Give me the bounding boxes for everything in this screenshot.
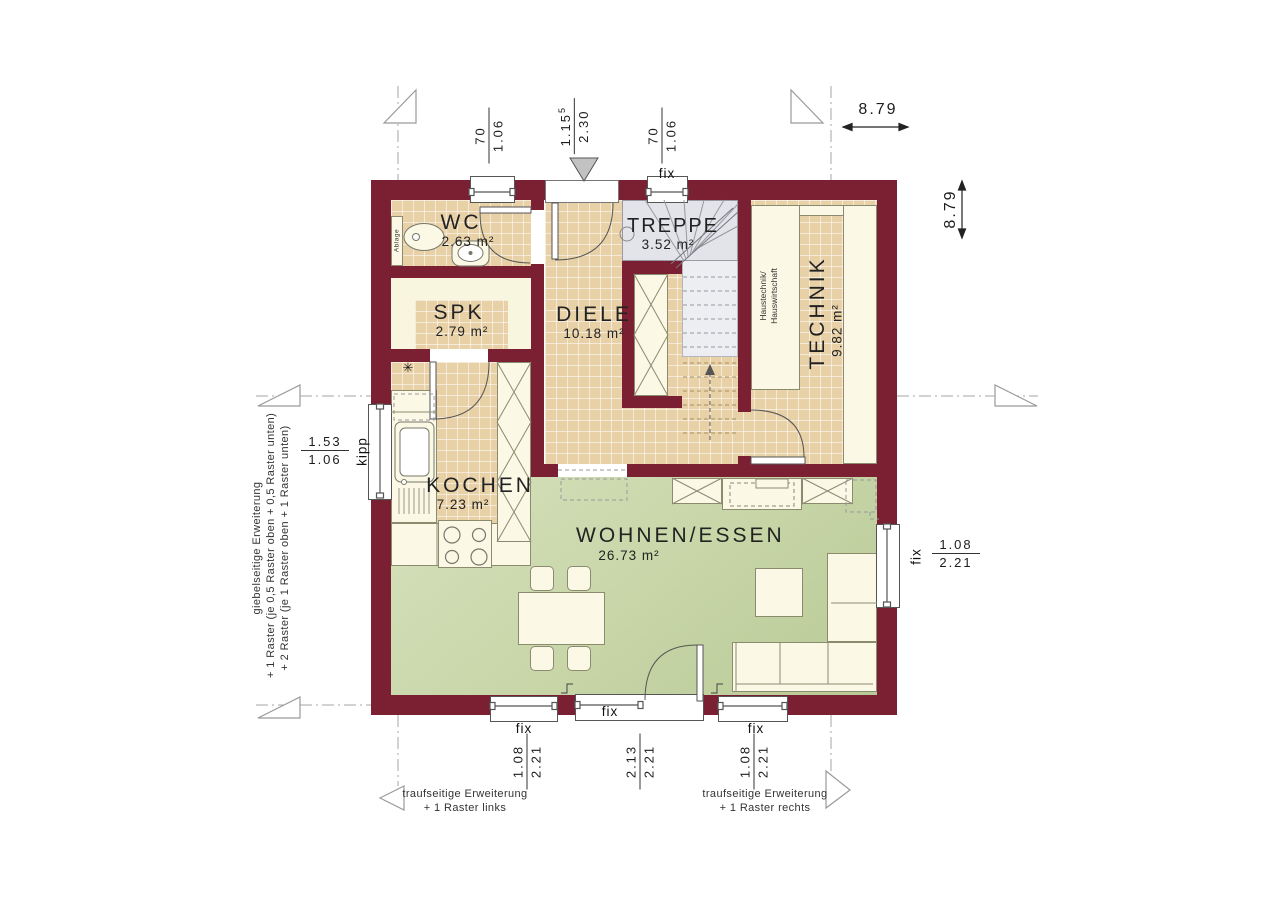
room-label-wc: WC: [421, 211, 501, 235]
room-area-wohnen: 26.73 m²: [584, 548, 674, 563]
window-label-right-fix: fix: [909, 542, 924, 572]
wall-wc-bottom: [391, 266, 544, 278]
room-label-kochen: KOCHEN: [425, 474, 535, 498]
technik-note-line2: Hauswirtschaft: [769, 251, 780, 341]
room-label-diele: DIELE: [544, 303, 644, 327]
dim-top-wc-window: 70 1.06: [473, 108, 506, 164]
technik-note: Haustechnik/ Hauswirtschaft: [758, 251, 780, 341]
dining-chair: [530, 646, 554, 671]
sideboard-left: [672, 478, 722, 504]
room-area-wc: 2.63 m²: [428, 234, 508, 249]
dim-bottom-terrace: 2.13 2.21: [624, 734, 657, 790]
kitchen-stove: [438, 520, 492, 568]
sofa-seat: [732, 642, 877, 692]
wall-exterior-top: [371, 180, 897, 200]
dining-chair: [567, 566, 591, 591]
room-area-kochen: 7.23 m²: [423, 497, 503, 512]
dim-top-entrance: 1.155 2.30: [557, 98, 591, 154]
wall-hall-west: [531, 264, 544, 477]
room-label-treppe: TREPPE: [618, 215, 728, 238]
floorplan-canvas: WC 2.63 m² SPK 2.79 m² DIELE 10.18 m² TR…: [0, 0, 1280, 905]
technik-cabinet-right: [843, 205, 877, 464]
dining-table: [518, 592, 605, 645]
window-bottom-left-fix: [490, 696, 558, 722]
wc-shelf-label: Ablage: [394, 221, 401, 261]
dim-bottom-right-window: 1.08 2.21: [738, 734, 771, 790]
annotation-bottom-right: traufseitige Erweiterung + 1 Raster rech…: [695, 787, 835, 815]
wall-technik-west: [738, 200, 751, 412]
room-area-technik: 9.82 m²: [830, 291, 845, 371]
dim-right-window: 1.08 2.21: [932, 537, 980, 570]
room-area-diele: 10.18 m²: [544, 326, 644, 341]
sofa-chaise: [827, 553, 877, 642]
dining-chair: [567, 646, 591, 671]
sideboard-middle: [722, 478, 802, 510]
kitchen-tall-cabinets: [497, 362, 531, 542]
dim-left-window: 1.53 1.06: [301, 434, 349, 467]
dim-bottom-left-window: 1.08 2.21: [511, 734, 544, 790]
kitchen-marker: ✳: [396, 360, 420, 376]
coffee-table: [755, 568, 803, 617]
stair-lower-flight: [682, 261, 738, 357]
wall-pantry-bottom-right: [488, 349, 544, 362]
wall-hall-living: [627, 464, 877, 477]
entrance-arrow-icon: [570, 158, 598, 181]
sideboard-right: [802, 478, 853, 504]
annotation-left: giebelseitige Erweiterung + 1 Raster (je…: [250, 418, 292, 678]
room-area-spk: 2.79 m²: [422, 324, 502, 339]
annotation-bottom-left: traufseitige Erweiterung + 1 Raster link…: [395, 787, 535, 815]
wall-passage-stub: [544, 464, 558, 477]
window-label-top-fix: fix: [647, 166, 687, 181]
room-label-technik: TECHNIK: [806, 253, 830, 373]
room-area-treppe: 3.52 m²: [613, 237, 723, 252]
dim-overall-height: 8.79: [942, 179, 960, 239]
wall-stair-stub-bottom: [622, 396, 682, 408]
window-top-wc: [470, 176, 515, 203]
wall-technik-doorframe: [738, 456, 751, 464]
window-right-fix: [876, 524, 900, 608]
dim-top-fix-window: 70 1.06: [646, 108, 679, 164]
dining-chair: [530, 566, 554, 591]
window-label-terrace-fix: fix: [590, 704, 630, 719]
room-label-wohnen: WOHNEN/ESSEN: [576, 524, 776, 548]
dim-overall-width: 8.79: [848, 101, 908, 119]
window-bottom-right-fix: [718, 696, 788, 722]
window-label-kipp: kipp: [355, 432, 370, 472]
room-label-spk: SPK: [419, 301, 499, 325]
wall-hall-west-upper: [531, 200, 544, 210]
entrance-opening: [545, 180, 619, 203]
wall-exterior-right: [877, 180, 897, 715]
technik-note-line1: Haustechnik/: [758, 251, 769, 341]
window-left-kipp: [368, 404, 392, 500]
